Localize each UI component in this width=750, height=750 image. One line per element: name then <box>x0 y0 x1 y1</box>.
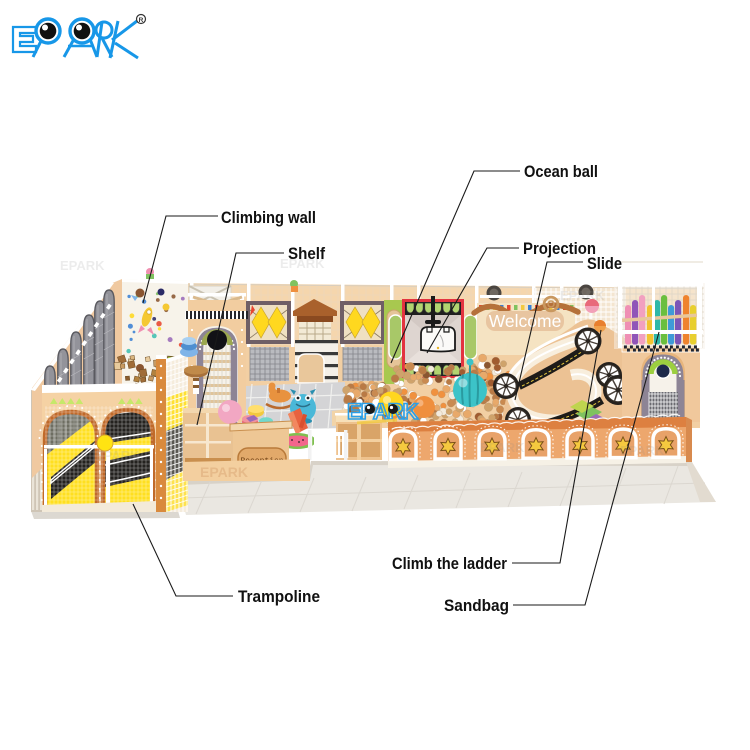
svg-text:EPARK: EPARK <box>95 448 140 463</box>
svg-text:Sandbag: Sandbag <box>444 596 509 615</box>
svg-text:Climb the ladder: Climb the ladder <box>392 554 507 573</box>
svg-text:EPARK: EPARK <box>60 258 105 273</box>
svg-text:EPARK: EPARK <box>480 440 525 455</box>
svg-text:Slide: Slide <box>587 254 622 273</box>
svg-text:Shelf: Shelf <box>288 244 325 263</box>
svg-text:EPARK: EPARK <box>200 464 248 480</box>
svg-text:Ocean ball: Ocean ball <box>524 162 598 181</box>
svg-text:EPARK: EPARK <box>560 288 605 303</box>
svg-text:Trampoline: Trampoline <box>238 587 320 606</box>
svg-text:Climbing wall: Climbing wall <box>221 208 316 227</box>
svg-text:Welcome: Welcome <box>489 311 562 331</box>
svg-text:R: R <box>139 17 144 24</box>
svg-text:Projection: Projection <box>523 239 596 258</box>
